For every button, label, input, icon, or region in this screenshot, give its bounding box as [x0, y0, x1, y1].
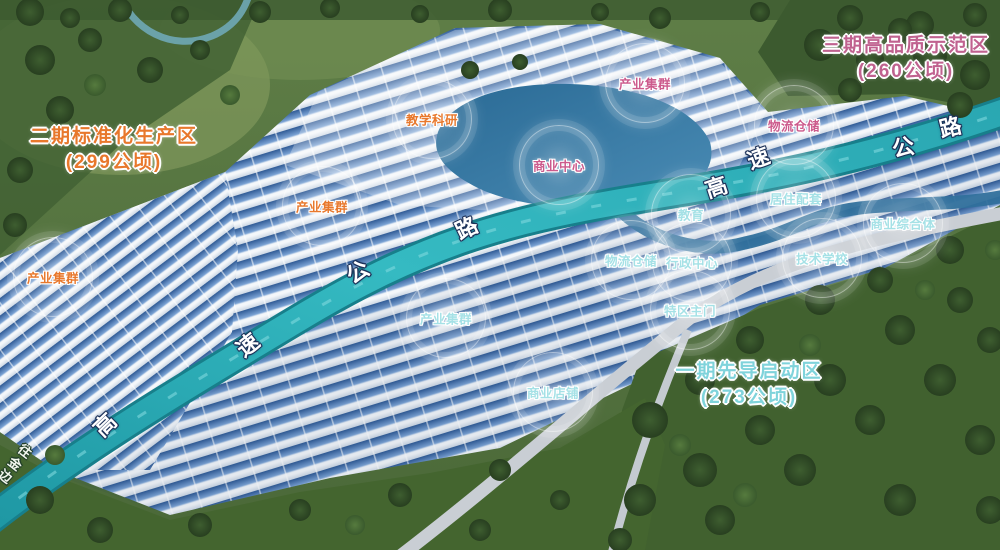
facility-label: 特区主门 — [664, 301, 716, 320]
facility-label: 商业店铺 — [527, 383, 579, 402]
aerial-masterplan: 二期标准化生产区 (299公顷) 三期高品质示范区 (260公顷) 一期先导启动… — [0, 0, 1000, 550]
zone-area: (260公顷) — [822, 59, 990, 85]
zone-area: (273公顷) — [675, 385, 822, 411]
facility-label: 技术学校 — [796, 249, 848, 268]
facility-label: 商业综合体 — [870, 214, 935, 233]
facility-label: 物流仓储 — [605, 251, 657, 270]
facility-label: 教育 — [678, 205, 704, 224]
zone-name: 二期标准化生产区 — [30, 124, 198, 150]
zone-title-phase-2: 二期标准化生产区 (299公顷) — [30, 124, 198, 176]
facility-label: 教学科研 — [406, 110, 458, 129]
zone-name: 三期高品质示范区 — [822, 33, 990, 59]
label-layer: 二期标准化生产区 (299公顷) 三期高品质示范区 (260公顷) 一期先导启动… — [0, 0, 1000, 550]
highway-name-character: 路 — [935, 108, 964, 144]
zone-title-phase-1: 一期先导启动区 (273公顷) — [675, 359, 822, 411]
facility-label: 行政中心 — [666, 253, 718, 272]
direction-label: 往金边 — [0, 439, 36, 489]
facility-label: 居住配套 — [770, 189, 822, 208]
highway-name-character: 高 — [85, 405, 123, 443]
facility-label: 产业集群 — [420, 309, 472, 328]
facility-label: 商业中心 — [533, 156, 585, 175]
highway-name-character: 公 — [339, 252, 375, 291]
zone-title-phase-3: 三期高品质示范区 (260公顷) — [822, 33, 990, 85]
highway-name-character: 公 — [889, 128, 917, 164]
facility-label: 产业集群 — [27, 268, 79, 287]
zone-name: 一期先导启动区 — [675, 359, 822, 385]
facility-label: 产业集群 — [619, 74, 671, 93]
highway-name-character: 速 — [228, 325, 265, 364]
facility-label: 产业集群 — [296, 197, 348, 216]
facility-label: 物流仓储 — [768, 116, 820, 135]
highway-name-character: 路 — [449, 208, 483, 246]
zone-area: (299公顷) — [30, 150, 198, 176]
